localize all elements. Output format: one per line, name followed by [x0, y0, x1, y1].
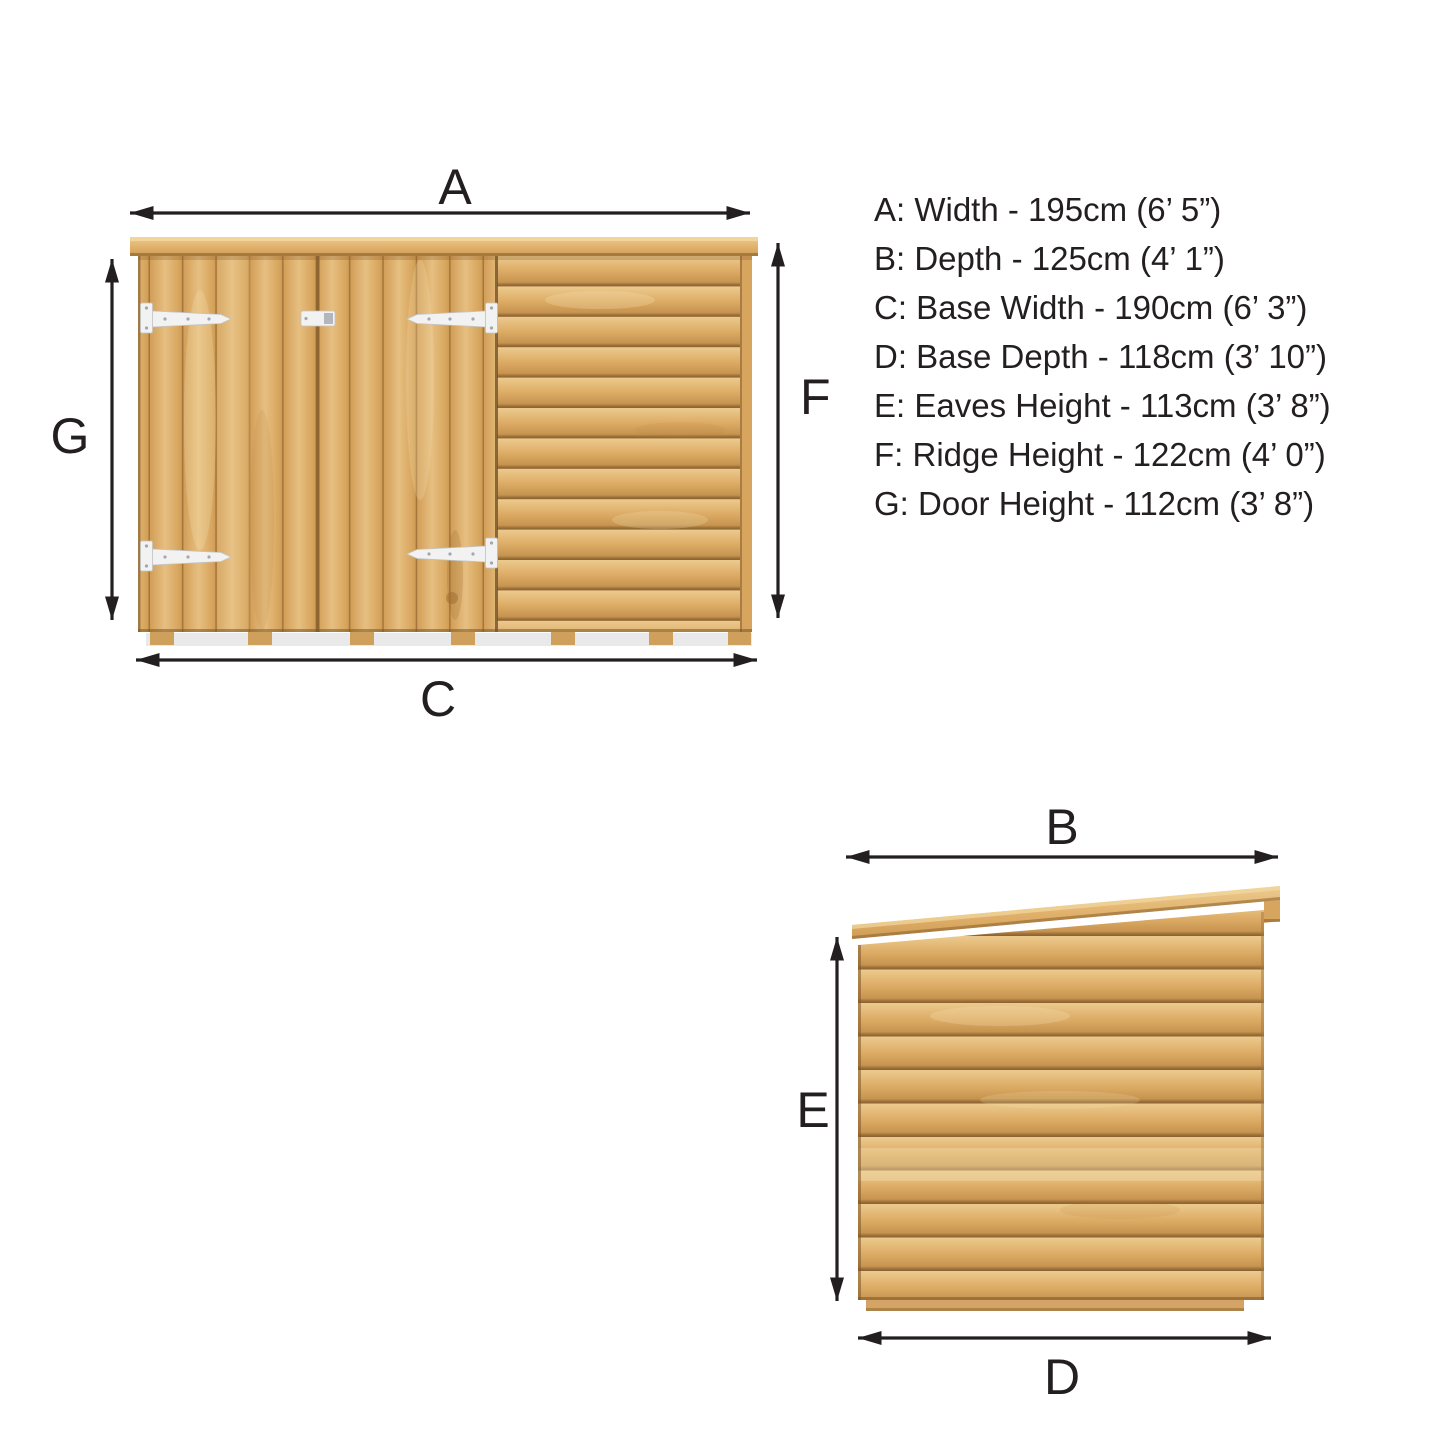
door-latch-icon [301, 311, 335, 326]
eaves-height-label: E [796, 1082, 829, 1138]
dimension-eaves-height-e: E [796, 937, 837, 1301]
door-height-label: G [51, 408, 90, 464]
dimension-list: A: Width - 195cm (6’ 5”) B: Depth - 125c… [874, 185, 1331, 528]
front-view-illustration [130, 237, 758, 646]
base-width-label: C [420, 671, 456, 727]
dimension-ridge-height-f: F [778, 243, 831, 618]
dimension-width-a: A [130, 159, 750, 215]
side-view-illustration [852, 886, 1280, 1311]
depth-label: B [1045, 799, 1078, 855]
dimension-line-depth: B: Depth - 125cm (4’ 1”) [874, 234, 1331, 283]
dimension-line-eaves-height: E: Eaves Height - 113cm (3’ 8”) [874, 381, 1331, 430]
dimension-line-base-width: C: Base Width - 190cm (6’ 3”) [874, 283, 1331, 332]
dimension-line-width: A: Width - 195cm (6’ 5”) [874, 185, 1331, 234]
front-side-cladding-panel [497, 256, 740, 632]
front-roof-cap [130, 237, 758, 256]
base-depth-label: D [1044, 1349, 1080, 1405]
dimension-base-depth-d: D [858, 1338, 1271, 1405]
dimension-line-ridge-height: F: Ridge Height - 122cm (4’ 0”) [874, 430, 1331, 479]
width-label: A [438, 159, 472, 215]
dimension-line-door-height: G: Door Height - 112cm (3’ 8”) [874, 479, 1331, 528]
dimension-base-width-c: C [136, 660, 757, 727]
dimension-depth-b: B [846, 799, 1278, 857]
dimension-line-base-depth: D: Base Depth - 118cm (3’ 10”) [874, 332, 1331, 381]
dimension-door-height-g: G [51, 259, 112, 620]
shed-dimension-diagram-page: A G F C [0, 0, 1445, 1445]
ridge-height-label: F [800, 369, 831, 425]
